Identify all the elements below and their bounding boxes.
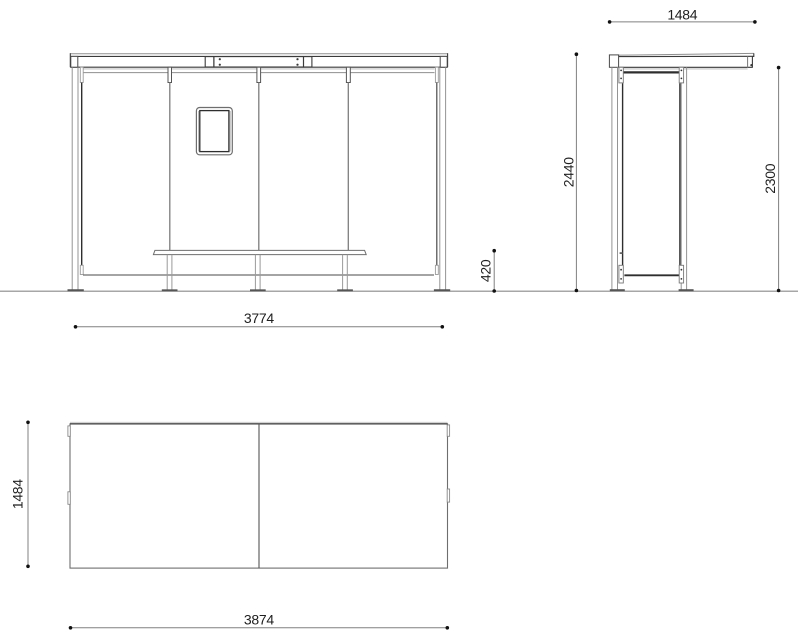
svg-text:3874: 3874 bbox=[244, 611, 274, 627]
svg-text:2440: 2440 bbox=[561, 157, 577, 187]
svg-text:2300: 2300 bbox=[762, 163, 778, 193]
svg-text:420: 420 bbox=[478, 259, 494, 282]
svg-text:3774: 3774 bbox=[244, 310, 274, 326]
svg-text:1484: 1484 bbox=[10, 479, 26, 509]
svg-text:1484: 1484 bbox=[667, 6, 697, 22]
